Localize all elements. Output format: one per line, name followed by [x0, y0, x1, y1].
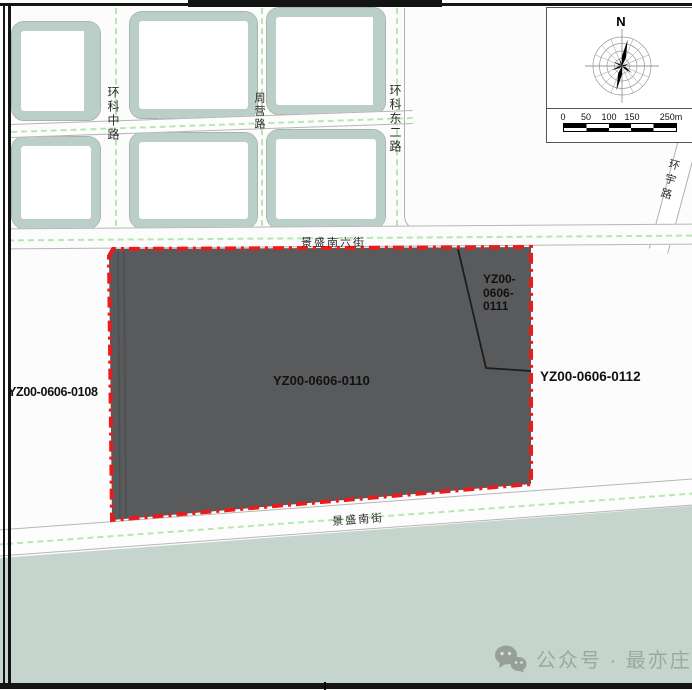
- parcel-label-east-0112: YZ00-0606-0112: [540, 369, 641, 384]
- scalebar-tick-150: 150: [624, 112, 639, 122]
- parcel-label-0111-line3: 0111: [483, 300, 516, 314]
- bottom-border-bar: [0, 683, 692, 689]
- scalebar: 0 50 100 150 250m: [547, 108, 692, 142]
- wind-rose-north-arrow-icon: [582, 26, 662, 106]
- top-border-thick-segment: [188, 0, 442, 7]
- road-label-jingsheng-nan-liu: 景盛南六街: [301, 234, 366, 250]
- planning-map-canvas: { "roads": { "huanke_zhong": "环科中路", "zh…: [0, 0, 692, 690]
- road-label-huanke-dong-er: 环科东二路: [388, 84, 401, 154]
- road-label-zhouying: 周营路: [252, 92, 265, 131]
- road-label-huanke-zhong: 环科中路: [106, 86, 119, 142]
- scalebar-tick-100: 100: [601, 112, 616, 122]
- left-border-line-inner: [8, 3, 11, 688]
- scalebar-tick-250m: 250m: [660, 112, 683, 122]
- scalebar-tick-0: 0: [560, 112, 565, 122]
- left-border-line-outer: [3, 3, 5, 688]
- wechat-official-account-icon: [494, 645, 528, 673]
- watermark: 公众号 · 最亦庄: [494, 644, 692, 673]
- parcel-label-0111-line1: YZ00-: [483, 273, 516, 287]
- watermark-text: 公众号 · 最亦庄: [536, 644, 692, 673]
- scalebar-tick-50: 50: [581, 112, 591, 122]
- scalebar-bar: [563, 123, 677, 132]
- parcel-label-main-0110: YZ00-0606-0110: [273, 373, 370, 388]
- parcel-label-0111-line2: 0606-: [483, 287, 516, 301]
- parcel-label-northeast-0111: YZ00- 0606- 0111: [483, 273, 516, 314]
- bottom-border-tick: [324, 682, 326, 690]
- parcel-label-west-0108: YZ00-0606-0108: [8, 385, 98, 399]
- map-legend-box: N 0 50 100 150 250m: [546, 7, 692, 143]
